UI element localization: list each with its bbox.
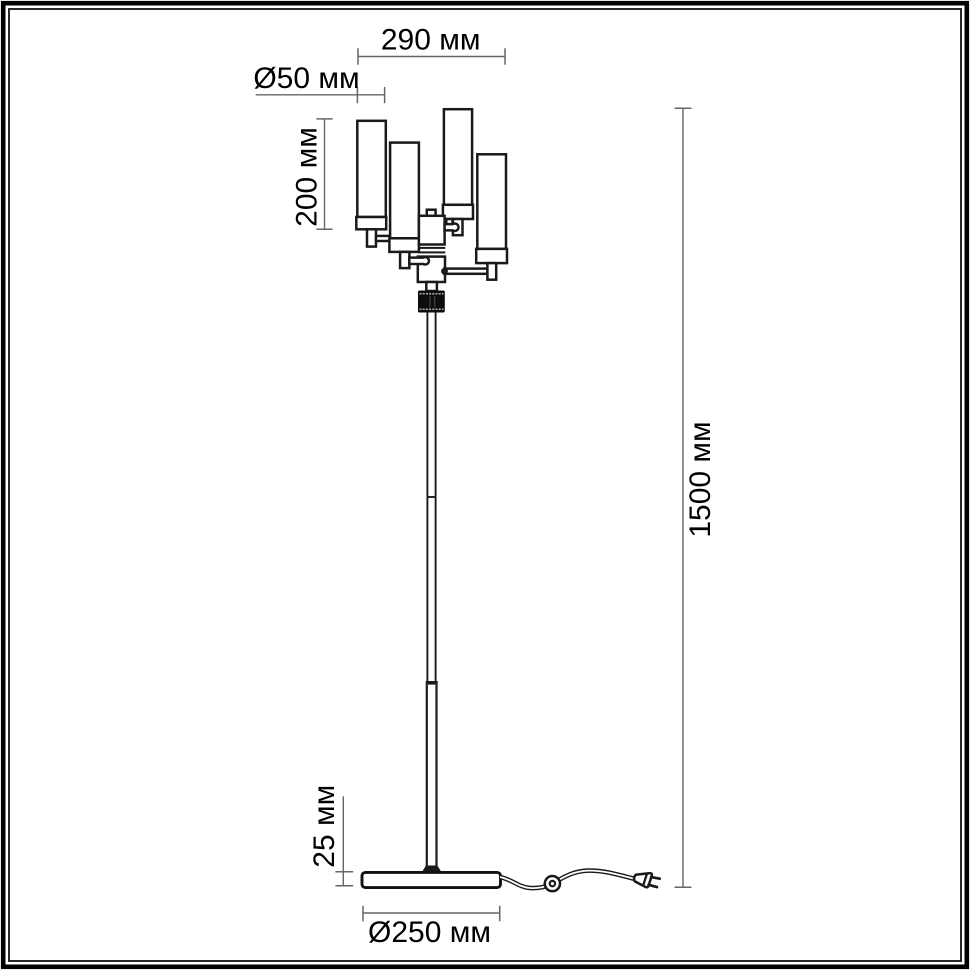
svg-text:1500 мм: 1500 мм (684, 421, 717, 537)
svg-text:200 мм: 200 мм (291, 127, 324, 227)
svg-text:Ø50 мм: Ø50 мм (253, 62, 359, 95)
svg-text:25 мм: 25 мм (308, 785, 341, 868)
svg-text:290 мм: 290 мм (381, 23, 481, 56)
svg-text:Ø250 мм: Ø250 мм (368, 916, 491, 949)
